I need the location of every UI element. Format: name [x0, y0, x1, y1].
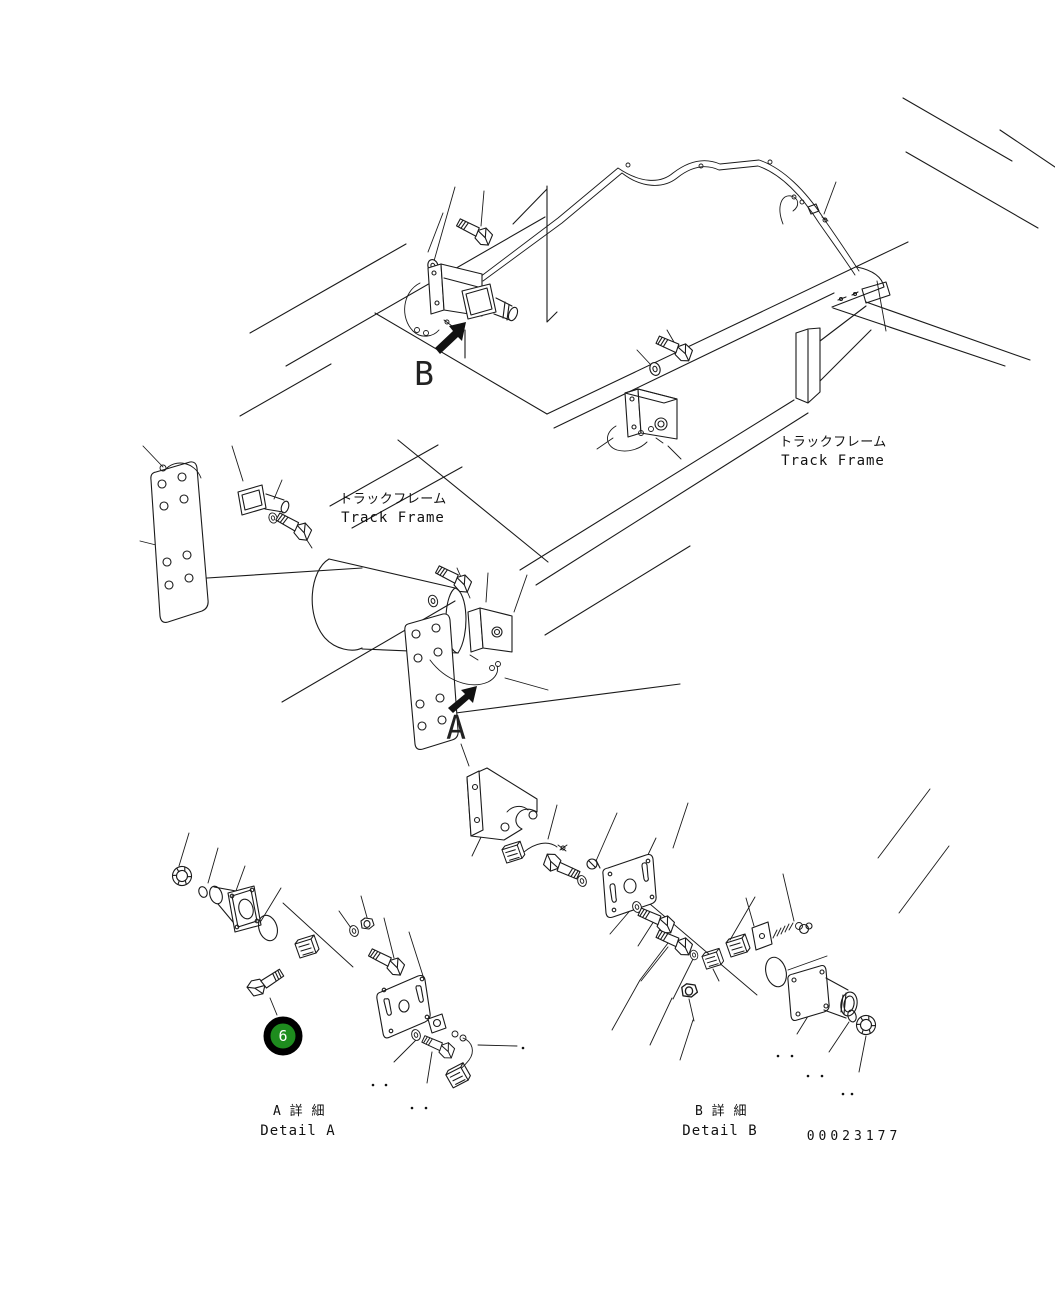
clip-screw — [587, 859, 600, 869]
track-frame-right-en: Track Frame — [781, 453, 885, 469]
o-ring — [197, 885, 208, 898]
bolt — [654, 332, 695, 363]
detail-a-label: A 詳 細 Detail A — [260, 1103, 335, 1139]
bolt-item-6 — [245, 965, 285, 999]
connector-block — [295, 935, 319, 958]
detail-a-view: 6 A 詳 細 Detail A — [170, 833, 524, 1139]
clip-nut — [428, 1014, 446, 1033]
cap-nut — [170, 864, 193, 887]
parts-diagram: B — [0, 0, 1055, 1289]
callout-6[interactable]: 6 — [267, 1020, 299, 1052]
bolt — [273, 510, 314, 543]
bolt — [541, 851, 582, 882]
washer — [410, 1028, 421, 1041]
wire-coil — [773, 923, 812, 939]
leader-lines — [472, 789, 949, 1072]
connector-flange — [238, 485, 266, 515]
terminal-plate — [752, 922, 772, 950]
washer — [427, 594, 439, 608]
bolt — [420, 1032, 457, 1060]
detail-b-label: B 詳 細 Detail B — [682, 1103, 757, 1139]
left-mount-plate — [140, 446, 314, 622]
plate — [603, 855, 656, 918]
connector-assembly-right — [597, 330, 695, 459]
detail-a-label-jp: A 詳 細 — [273, 1103, 325, 1119]
cover-box — [467, 768, 537, 840]
view-marker-b: B — [414, 354, 434, 393]
leader-lines — [179, 833, 517, 1083]
track-frame-lines — [176, 98, 1055, 714]
track-frame-label-right: トラックフレーム Track Frame — [779, 435, 887, 469]
view-marker-a: A — [446, 708, 466, 747]
detail-a-label-en: Detail A — [260, 1123, 335, 1139]
nut — [361, 918, 374, 929]
wire-with-terminal — [444, 1031, 472, 1089]
drawing-number: 00023177 — [807, 1129, 902, 1144]
wiring-harness — [480, 160, 890, 331]
main-view: B — [140, 98, 1055, 766]
detail-b-label-en: Detail B — [682, 1123, 757, 1139]
track-frame-left-jp: トラックフレーム — [339, 492, 447, 507]
connector-block — [726, 934, 750, 957]
ellipsis-dots — [777, 1055, 854, 1096]
middle-mount-plate — [405, 562, 548, 766]
view-arrow-b — [435, 322, 466, 354]
callout-6-number: 6 — [278, 1027, 287, 1045]
pigtail-wire — [780, 182, 836, 224]
flanged-connector — [208, 885, 261, 932]
nut — [682, 984, 698, 997]
cap-nut — [854, 1013, 877, 1036]
plate — [377, 976, 430, 1038]
track-frame-right-jp: トラックフレーム — [779, 435, 887, 450]
detail-b-view: B 詳 細 Detail B — [467, 768, 949, 1139]
parts-diagram-page: B — [0, 0, 1055, 1289]
track-frame-left-en: Track Frame — [341, 510, 445, 526]
harness-bracket — [862, 282, 890, 303]
gasket-oval — [762, 955, 789, 989]
bolt — [454, 215, 495, 247]
bolt — [366, 945, 407, 977]
track-frame-label-left: トラックフレーム Track Frame — [339, 492, 447, 526]
detail-b-label-jp: B 詳 細 — [695, 1103, 747, 1119]
